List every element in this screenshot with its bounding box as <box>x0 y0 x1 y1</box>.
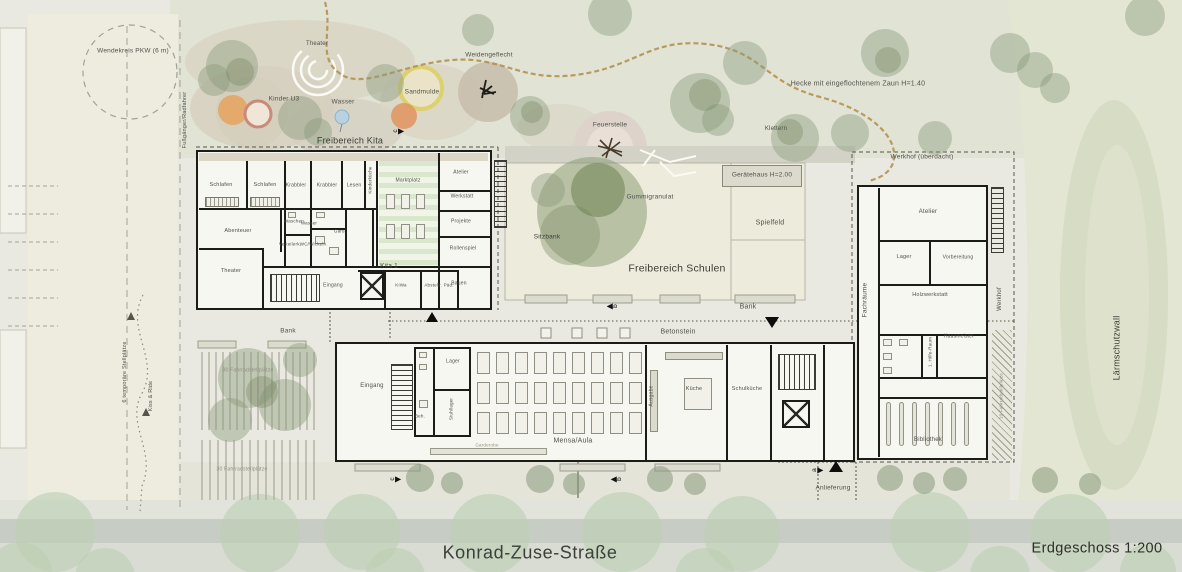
room-eingang-kita: Eingang <box>323 283 343 288</box>
room-stuhllager: Stuhllager <box>450 398 455 420</box>
label-werkhof-ueberdacht: Werkhof (überdacht) <box>891 155 954 162</box>
label-mensa-aula: Mensa/Aula <box>554 437 593 444</box>
label-theater-outdoor: Theater <box>306 41 328 47</box>
sidewalk <box>0 500 1182 520</box>
noise-barrier-mound-top <box>1085 145 1149 445</box>
south-hedge-band <box>180 462 1010 502</box>
bed-row <box>205 197 239 207</box>
room-ausgabe: Ausgabe <box>649 385 654 406</box>
room-projekte: Projekte <box>451 219 471 224</box>
label-feuerstelle: Feuerstelle <box>593 123 627 130</box>
label-stellplaetze: 6 temporäre Stellplätze <box>123 341 129 402</box>
label-hecke: Hecke mit eingeflochtenem Zaun H=1.40 <box>791 80 925 87</box>
label-klettern: Klettern <box>765 126 787 132</box>
label-weidengeflecht: Weidengeflecht <box>465 53 513 60</box>
label-kissride: Kiss & Ride <box>149 381 155 412</box>
label-laermschutzwall: Lärmschutzwall <box>1112 316 1121 381</box>
room-bibliothek: Bibliothek <box>914 437 942 443</box>
mensa-stairs-east <box>778 354 816 390</box>
street-name: Konrad-Zuse-Straße <box>443 544 618 563</box>
noise-barrier-mound <box>1060 100 1168 490</box>
room-schlafen-2: Schlafen <box>253 183 276 189</box>
label-spielfeld: Spielfeld <box>756 219 785 226</box>
room-krabbler-2: Krabbler <box>317 183 338 188</box>
label-geraetehaus: Gerätehaus H=2.00 <box>732 173 792 180</box>
room-lesen: Lesen <box>347 183 362 188</box>
room-kita-atelier: Atelier <box>453 170 469 175</box>
room-atelier-schule: Atelier <box>919 209 937 215</box>
kita-veranda-strip <box>199 153 488 161</box>
room-gard: Gard. <box>334 230 346 235</box>
label-freibereich-kita: Freibereich Kita <box>317 136 383 145</box>
school-building <box>857 185 988 460</box>
kiss-ride-route <box>137 295 148 512</box>
fire-pit-branches <box>598 138 622 158</box>
room-rollenspiel: Rollenspiel <box>450 246 477 251</box>
concrete-band <box>505 146 855 163</box>
bed-row <box>250 197 280 207</box>
kita-outdoor-stairs <box>494 160 507 228</box>
overlay-layer <box>0 0 1182 572</box>
room-kinderkueche: Kinderküche <box>369 166 374 193</box>
parking-markings <box>8 20 180 510</box>
label-fahrrad30-b: 30 Fahrradstellplätze <box>217 467 268 472</box>
room-eingang-mensa: Eingang <box>360 383 383 389</box>
room-hausmeister: Hausmeister <box>944 334 974 339</box>
room-beh: Beh. <box>415 415 425 420</box>
section-marker-c-north: c▶ <box>394 127 404 136</box>
ground-layer <box>0 0 1182 572</box>
paper-background <box>0 0 1182 572</box>
school-outdoor-stairs <box>991 187 1004 253</box>
mensa-elevator <box>782 400 810 428</box>
room-lager-schule: Lager <box>896 255 911 261</box>
room-marktplatz: Marktplatz <box>395 178 420 183</box>
road <box>0 519 1182 543</box>
room-schlafen-1: Schlafen <box>209 183 232 189</box>
room-schulkueche: Schulküche <box>732 387 762 393</box>
west-parking-area <box>28 14 178 510</box>
bike-racks <box>202 352 314 500</box>
east-lawn <box>1008 0 1182 572</box>
kita-elevator <box>360 272 384 300</box>
room-werkstatt: Werkstatt <box>451 194 474 199</box>
label-fahrrad30-a: 30 Fahrradstellplätze <box>223 368 274 373</box>
room-lager-mensa: Lager <box>446 359 460 364</box>
flag-icon: ▶ <box>817 466 823 475</box>
north-landscape <box>170 0 1030 158</box>
label-sandmulde: Sandmulde <box>405 90 440 97</box>
kitchen-island <box>684 378 712 410</box>
label-fussweg: Fußgänger/Radfahrer <box>183 92 189 149</box>
label-wendekreis: Wendekreis PKW (6 m) <box>97 49 169 56</box>
room-fachraeume: Fachräume <box>863 283 870 318</box>
room-wasser-kita: Wasser <box>301 222 317 227</box>
mensa-outdoor <box>0 0 1182 572</box>
room-verteiler: Verteilerk. <box>279 243 301 248</box>
label-sitzbank: Sitzbank <box>534 235 561 242</box>
section-marker-b-south: ◀b <box>611 475 622 484</box>
label-kita-1: Kita 1 <box>380 264 398 271</box>
label-bank-west: Bank <box>280 329 296 336</box>
climbing-structure <box>640 150 696 176</box>
room-abstellr: Abstellr. Päd. <box>424 284 453 289</box>
route-arrows <box>127 312 150 416</box>
neighbor-building-2 <box>0 330 26 448</box>
label-wasser-outdoor: Wasser <box>332 100 355 107</box>
mensa-building <box>335 342 855 462</box>
garderobe-bench <box>430 448 547 455</box>
label-werkhof-east: Werkhof <box>997 287 1003 311</box>
room-abenteuer: Abenteuer <box>224 229 251 235</box>
label-fahrrad10: 10 Fahrradstellplätze <box>1000 373 1005 419</box>
label-kinder-u3: Kinder U3 <box>269 97 300 104</box>
flag-icon: ▶ <box>395 475 401 484</box>
willow-weave <box>480 80 496 98</box>
section-marker-c-south: c▶ <box>391 475 401 484</box>
room-kiwa: KiWa <box>395 284 406 289</box>
room-theater-kita: Theater <box>221 269 241 275</box>
room-vorbereitung: Vorbereitung <box>943 255 974 260</box>
neighbor-building-1 <box>0 28 26 233</box>
section-marker-a: a▶ <box>813 466 824 475</box>
label-freibereich-schulen: Freibereich Schulen <box>628 263 725 274</box>
kita-stairs <box>270 274 320 302</box>
site-plan: Wendekreis PKW (6 m) Fußgänger/Radfahrer… <box>0 0 1182 572</box>
room-krabbler-1: Krabbler <box>286 183 307 188</box>
room-holzwerkstatt: Holzwerkstatt <box>912 293 948 299</box>
label-betonstein: Betonstein <box>660 328 695 335</box>
room-hilfe-raum: 1. Hilfe-Raum <box>929 337 934 367</box>
plan-title: Erdgeschoss 1:200 <box>1032 541 1163 556</box>
label-gummigranulat: Gummigranulat <box>626 195 673 202</box>
room-kueche: Küche <box>686 387 703 393</box>
mensa-core <box>414 347 471 437</box>
flag-icon: ▶ <box>398 127 404 136</box>
label-anlieferung: Anlieferung <box>815 486 850 493</box>
room-garderobe: Garderobe <box>475 444 498 449</box>
room-wc-wickeln: WC/Wickeln <box>300 243 327 248</box>
water-feature <box>335 110 349 124</box>
theater-spiral <box>293 45 343 95</box>
section-marker-b-north: ◀b <box>607 302 618 311</box>
mensa-stairs-west <box>391 364 413 430</box>
label-bank-schoolyard: Bank <box>740 303 757 310</box>
